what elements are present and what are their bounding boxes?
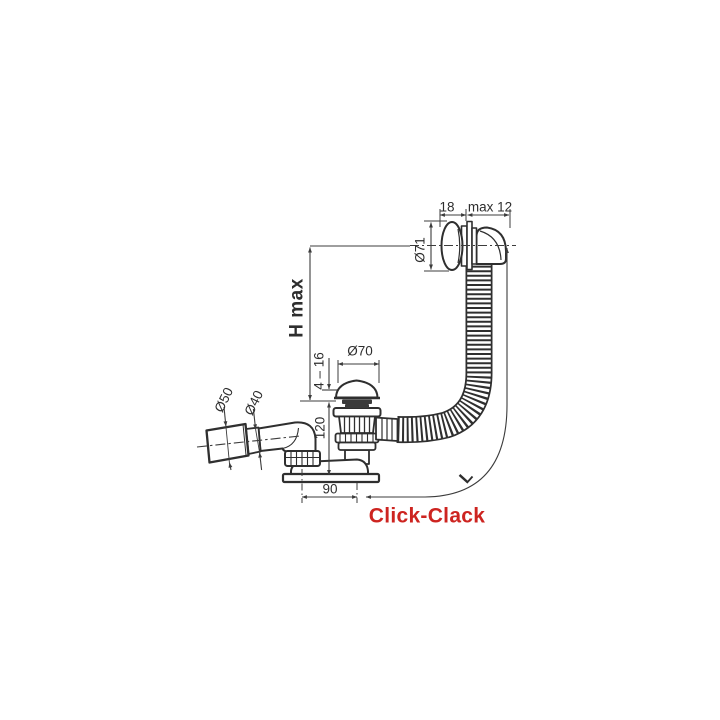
dim-label-120: 120 xyxy=(313,417,327,440)
dim-label-18: 18 xyxy=(439,200,454,214)
dim-label-d70: Ø70 xyxy=(347,344,373,358)
dim-label-d71: Ø71 xyxy=(413,237,427,263)
corrugated-hose-icon xyxy=(397,263,479,430)
dim-label-4-16: 4 – 16 xyxy=(312,352,326,390)
hose-nut-icon xyxy=(376,418,398,442)
elbow-nut-icon xyxy=(285,451,320,466)
diagram-stage: 18 max 12 Ø71 H max Ø70 4 – 16 Ø50 Ø40 1… xyxy=(0,0,720,720)
clickclack-valve-icon xyxy=(334,381,398,451)
plug-cap-icon xyxy=(334,381,380,409)
dim-label-max12: max 12 xyxy=(468,200,512,214)
dim-label-hmax: H max xyxy=(288,278,307,338)
product-name-label: Click-Clack xyxy=(369,506,486,527)
dim-label-90: 90 xyxy=(322,482,337,496)
diagram-canvas xyxy=(0,0,720,720)
